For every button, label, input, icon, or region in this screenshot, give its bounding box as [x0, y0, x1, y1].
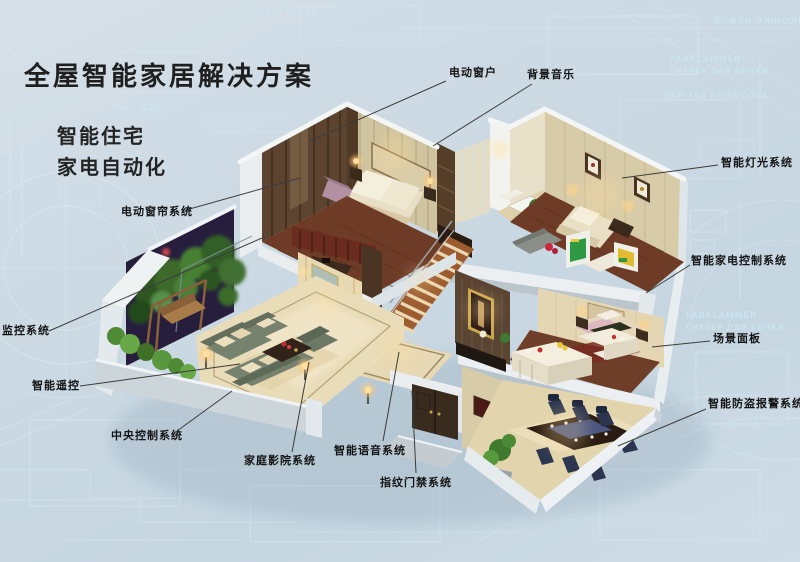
poster: ВОИЛИ ЭЖИОЛИFABKLAMMERГИРБЕР ДЛЯ БОЧКИЗО…: [0, 0, 800, 562]
leader-line-burglar-alarm-system: [618, 409, 706, 446]
callout-scene-panel: 场景面板: [713, 330, 761, 346]
leader-line-smart-lighting-system: [622, 165, 718, 178]
callout-burglar-alarm-system: 智能防盗报警系统: [708, 395, 800, 411]
leader-line-monitoring-system: [49, 238, 262, 331]
subtitle-line-2: 家电自动化: [57, 151, 167, 180]
leader-line-home-theater-system: [292, 362, 309, 452]
leader-line-smart-voice-system: [383, 352, 399, 441]
callout-background-music: 背景音乐: [527, 66, 575, 82]
callout-fingerprint-access-system: 指纹门禁系统: [380, 474, 452, 490]
callout-central-control-system: 中央控制系统: [111, 427, 183, 443]
leader-line-smart-remote-control: [80, 364, 240, 386]
leader-line-scene-panel: [652, 341, 710, 347]
callout-monitoring-system: 监控系统: [2, 322, 50, 338]
leader-line-electric-window: [310, 81, 446, 141]
leader-line-electric-curtain-system: [186, 178, 300, 210]
callout-home-theater-system: 家庭影院系统: [244, 452, 316, 468]
callout-smart-lighting-system: 智能灯光系统: [721, 154, 793, 170]
callout-electric-window: 电动窗户: [449, 64, 497, 80]
leader-line-central-control-system: [177, 391, 232, 431]
leader-line-background-music: [433, 84, 532, 146]
callout-smart-voice-system: 智能语音系统: [334, 442, 406, 458]
page-title: 全屋智能家居解决方案: [24, 56, 314, 93]
leader-line-smart-appliance-control-system: [646, 265, 690, 293]
callout-electric-curtain-system: 电动窗帘系统: [121, 203, 193, 219]
callout-smart-appliance-control-system: 智能家电控制系统: [691, 252, 787, 268]
subtitle-line-1: 智能住宅: [57, 120, 145, 149]
leader-line-fingerprint-access-system: [412, 391, 416, 473]
callout-smart-remote-control: 智能遥控: [32, 377, 80, 393]
